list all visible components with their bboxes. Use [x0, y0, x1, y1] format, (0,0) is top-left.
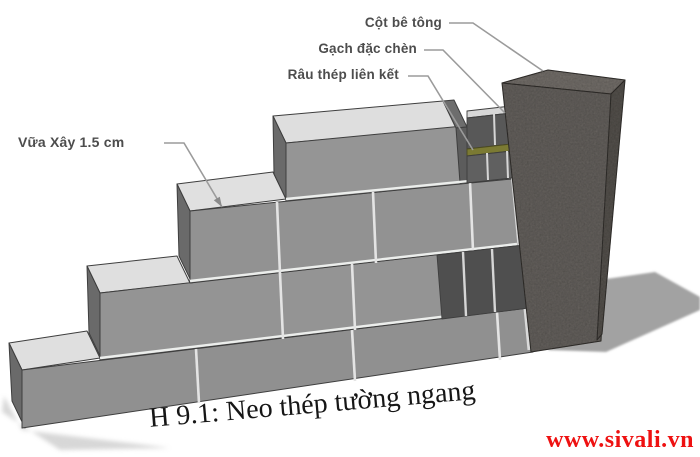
label-mortar: Vữa Xây 1.5 cm — [18, 134, 124, 150]
figure-canvas: Cột bê tông Gạch đặc chèn Râu thép liên … — [0, 0, 700, 457]
label-steel-tie: Râu thép liên kết — [288, 67, 399, 82]
leader-column — [449, 23, 543, 71]
watermark-url: www.sivali.vn — [546, 427, 694, 454]
label-concrete-column: Cột bê tông — [365, 15, 442, 30]
label-infill-brick: Gạch đặc chèn — [318, 41, 417, 56]
infill-brick-zone-lower — [437, 245, 529, 319]
infill-vertical-bricks — [437, 245, 529, 319]
